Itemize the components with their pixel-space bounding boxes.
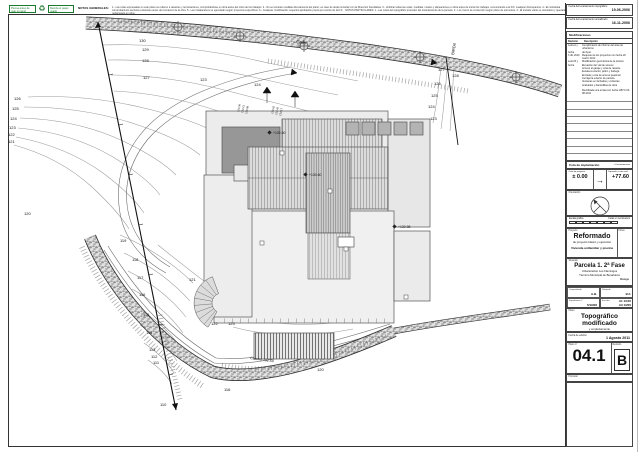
mod-rev: 3 dic 2010 — [567, 54, 582, 61]
spot-label: 121 — [189, 277, 196, 282]
contour-label: 130 — [139, 38, 146, 43]
arrow-right-icon: → — [594, 170, 606, 189]
sheet-number-row: Plano nº 04.1 Revisión B — [566, 342, 633, 374]
graphic-scale-label: Escala gráfica — [567, 217, 583, 220]
building-roof-plan — [204, 111, 430, 359]
contour-label: 113 — [149, 347, 156, 352]
entrance-arrow-icon — [291, 69, 297, 75]
mod-row: 3 dic 2010Reajuste de los proyectos con … — [567, 54, 632, 61]
contour-label: 124 — [428, 104, 435, 109]
mod-desc: Acabados y barandillas de obra — [582, 84, 632, 87]
drawn-value: B.F. — [626, 292, 631, 296]
edition-date-label: Fecha de edición — [569, 335, 609, 338]
contour-label: 120 — [24, 211, 31, 216]
contour-label: 117 — [137, 275, 144, 280]
modifications-col-rev: Revisión — [567, 39, 583, 43]
contour-label: 127 — [438, 67, 445, 72]
spot-label: 116 — [224, 387, 231, 392]
contour-label: 123 — [430, 116, 437, 121]
contour-label: 111 — [153, 360, 160, 365]
edition-date-row: Fecha de edición 1 Agosto 2011 — [566, 332, 633, 342]
real-level-label: Equivale a cota real — [607, 170, 633, 173]
mod-row: Acabados y barandillas de obra — [567, 84, 632, 87]
file-label: Expediente nº — [569, 300, 583, 302]
meta-grid: Comprobado A.B. Dibujado B.F. Expediente… — [566, 286, 633, 308]
contour-label: 128 — [142, 58, 149, 63]
north-arrow-icon — [567, 195, 633, 216]
level-text: +130.60 — [273, 131, 285, 135]
developer-bar: Promotor — [566, 374, 633, 382]
file-cell: Expediente nº 5/19/06 — [567, 298, 600, 308]
orientation-panel: Orientación — [566, 190, 633, 216]
spot-label: 122 — [211, 321, 218, 326]
side-road-label: BIRD4 — [450, 42, 457, 55]
implantation-label: Cota de implantación — [569, 163, 599, 167]
empty-rule — [567, 117, 632, 124]
scales-cell: Escalas A1 1/100 A3 1/200 — [600, 298, 633, 308]
graphic-scale-panel: Escala gráfica Cotas en centímetros — [566, 216, 633, 228]
scales-label: Escalas — [602, 300, 610, 302]
contour-label: 126 — [14, 96, 21, 101]
survey-date-2-value: 16-11-2006 — [612, 21, 630, 25]
empty-rule — [567, 139, 632, 146]
revision-label: Revisión — [613, 344, 622, 346]
project-object: Vivienda unifamiliar y piscina — [567, 246, 617, 250]
contour-label: 116 — [139, 292, 146, 297]
empty-rule — [567, 132, 632, 139]
checked-value: A.B. — [591, 292, 597, 296]
contour-label: 125 — [431, 93, 438, 98]
empty-rule — [567, 147, 632, 154]
level-text: +130.98 — [398, 225, 410, 229]
notes-title: NOTAS GENERALES: — [78, 6, 109, 10]
project-title: Reformado — [567, 233, 617, 240]
contour-label: 115 — [143, 312, 150, 317]
modifications-col-desc: Descripción — [583, 39, 599, 43]
empty-rule — [567, 95, 632, 102]
level-equivalence-row: Cota de proyecto ± 0.00 → Equivale a cot… — [566, 169, 633, 190]
contour-label: 128 — [452, 73, 459, 78]
title-block: Fecha del levantamiento topográfico: 19-… — [565, 3, 632, 447]
contour-label: 121 — [8, 139, 15, 144]
modifications-panel: Modificaciones Revisión Descripción Letr… — [566, 31, 633, 161]
sheet-title-2: modificado — [567, 320, 632, 327]
spot-label: 124 — [254, 82, 261, 87]
mod-row: Letra A yCumplimiento de informe del áre… — [567, 44, 632, 51]
empty-rule — [567, 102, 632, 109]
level-text: +130.60 — [309, 173, 321, 177]
project-label: Proyecto — [569, 230, 578, 232]
empty-rule — [567, 124, 632, 131]
sheet-title-panel: Plano Topográfico modificado y emplazami… — [566, 308, 633, 332]
modifications-title: Modificaciones — [567, 32, 632, 39]
mod-desc: Reajuste de los proyectos con fecha 20 m… — [582, 54, 632, 61]
eco-stamp-left: Piensa antes de usar el papel — [9, 5, 36, 13]
checked-label: Comprobado — [569, 289, 582, 291]
contour-label: 124 — [10, 116, 17, 121]
contour-label: 123 — [9, 125, 16, 130]
mod-rev — [567, 84, 582, 87]
contour-label: 127 — [143, 75, 150, 80]
orientation-label: Orientación — [569, 192, 581, 194]
drawn-cell: Dibujado B.F. — [600, 287, 633, 298]
spot-label: 123 — [228, 321, 235, 326]
sheet-number-value: 04.1 — [567, 343, 611, 369]
implantation-sub: s/ levantamiento — [614, 164, 630, 166]
sheet-title-1: Topográfico — [567, 313, 632, 320]
contour-label: 129 — [142, 47, 149, 52]
developer-label: Promotor — [569, 376, 578, 378]
project-level-value: ± 0.00 — [567, 174, 593, 180]
location-label: Situación — [569, 260, 578, 262]
pergola — [254, 333, 334, 359]
scale-bar — [569, 221, 630, 224]
sheet-number-label: Plano nº — [569, 344, 578, 346]
survey-date-row-1: Fecha del levantamiento topográfico: 19-… — [566, 4, 633, 16]
contour-label: 118 — [132, 257, 139, 262]
survey-date-1-label: Fecha del levantamiento topográfico: — [569, 6, 609, 9]
benchmark-flags — [263, 59, 437, 107]
mod-rev: Letra A y — [567, 44, 582, 51]
location-line4: Málaga — [567, 277, 632, 281]
modifications-note: Rectificada una errata con fecha s/BTU 0… — [567, 87, 632, 95]
drawn-label: Dibujado — [602, 289, 611, 291]
mod-desc: Cumplimiento de informe del área de urba… — [582, 44, 632, 51]
location-panel: Situación Parcela 1. 2ª Fase Urbanizació… — [566, 258, 633, 286]
signature-label: Firma — [619, 230, 625, 232]
spot-label: 120 — [317, 367, 324, 372]
real-level-value: +77.60 — [607, 174, 633, 180]
project-level-label: Cota de proyecto — [567, 170, 593, 173]
contour-label: 119 — [120, 238, 127, 243]
empty-rule — [567, 110, 632, 117]
real-level-cell: Equivale a cota real +77.60 — [606, 170, 633, 189]
header-strip: Piensa antes de usar el papel ♻ Recicla … — [8, 3, 565, 15]
contour-label: 114 — [146, 330, 153, 335]
spot-label: 123 — [200, 77, 207, 82]
site-plan-drawing: +130.60 +130.60 +130.98 124.36 124.21 12… — [8, 15, 565, 448]
eco-stamp-right: Recicla el papel usado — [48, 5, 74, 13]
notes-text: 1.- Las cotas expresadas en este plano s… — [112, 6, 570, 15]
sheet-subtitle: y emplazamiento — [567, 327, 632, 331]
checked-cell: Comprobado A.B. — [567, 287, 600, 298]
units-label: Cotas en centímetros — [608, 217, 632, 220]
file-value: 5/19/06 — [587, 303, 597, 307]
sheet-title-label: Plano — [569, 310, 575, 312]
edition-date-value: 1 Agosto 2011 — [606, 336, 630, 340]
contour-label: 122 — [8, 132, 15, 137]
developer-empty-box — [566, 382, 633, 447]
project-panel: Proyecto Reformado de proyecto básico y … — [566, 228, 633, 258]
contour-label: 112 — [151, 354, 158, 359]
project-subtitle: de proyecto básico y ejecución — [567, 240, 617, 244]
contour-label: 125 — [12, 106, 19, 111]
plan-sheet: Piensa antes de usar el papel ♻ Recicla … — [0, 0, 640, 452]
implantation-bar: Cota de implantación s/ levantamiento — [566, 161, 633, 169]
scale-a3: A3 1/200 — [619, 303, 631, 307]
sheet-edge — [637, 0, 638, 452]
survey-date-1-value: 19-06-2006 — [612, 8, 630, 12]
recycle-icon: ♻ — [37, 4, 47, 14]
contour-label: 126 — [434, 81, 441, 86]
revision-value: B — [615, 350, 629, 370]
contour-label: 110 — [160, 402, 167, 407]
survey-date-row-2: Fecha del levantamiento actualizado: 16-… — [566, 17, 633, 29]
survey-date-2-label: Fecha del levantamiento actualizado: — [569, 19, 609, 22]
project-level-cell: Cota de proyecto ± 0.00 — [567, 170, 594, 189]
